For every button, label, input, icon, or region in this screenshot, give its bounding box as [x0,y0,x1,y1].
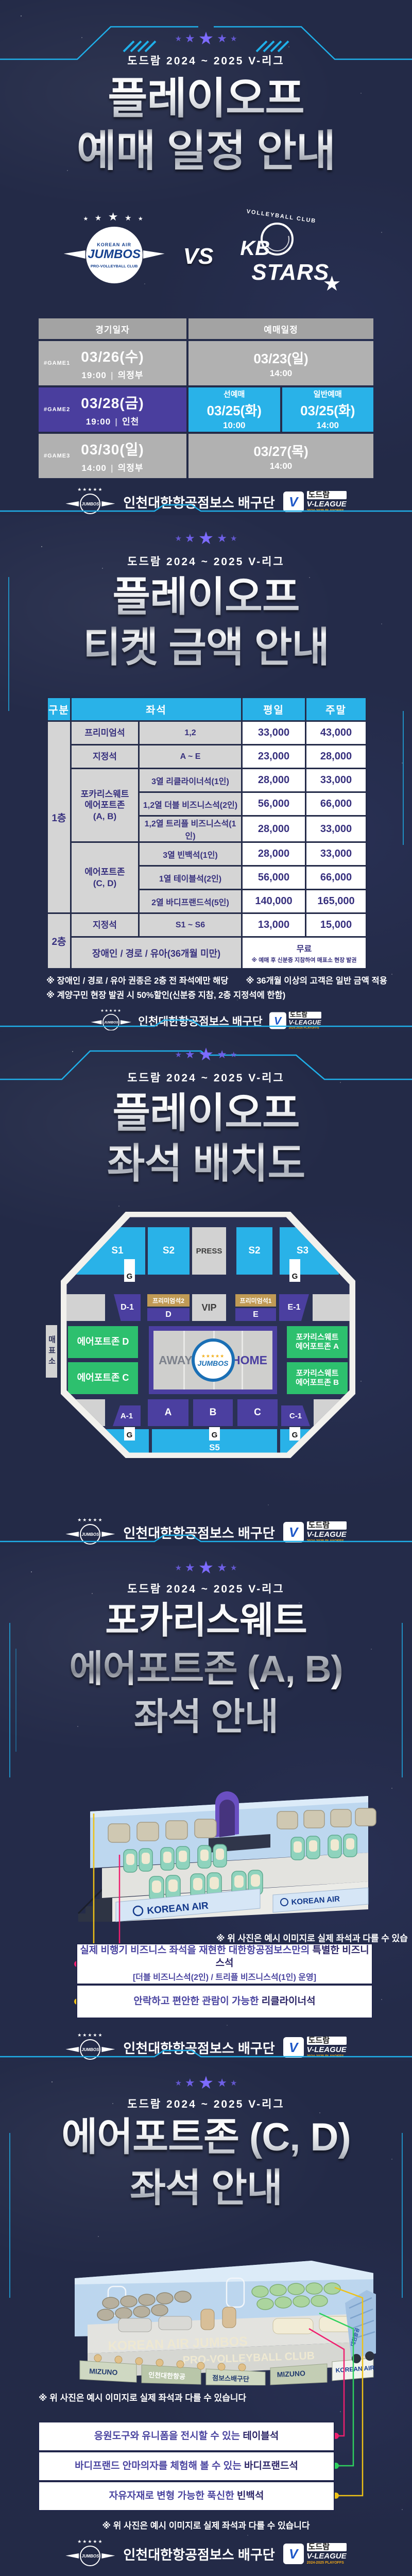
zone-ab-render: KOREAN AIR KOREAN AIR [31,1766,381,1926]
mini-wing-left-icon [65,501,79,506]
vleague-badge: V 도드람 V-LEAGUE 2024-2025 PLAYOFFS [283,491,347,513]
kb-stars-logo: VOLLEYBALL CLUB KB STARS ★ [231,210,349,303]
game2-time-venue: 19:00|인천 [86,414,140,427]
footer: ★★★★★JUMBOS 인천대한항공점보스 배구단 V 도드람V-LEAGUE2… [0,2539,412,2569]
price-table: 구분 좌석 평일 주말 1층 프리미엄석 1,2 33,000 43,000 지… [46,697,367,970]
seat-filler [313,1294,350,1321]
callout-table-seat: 응원도구와 유니폼을 전시할 수 있는 테이블석 [38,2421,335,2451]
seat-section-c1[interactable]: C-1 [281,1405,310,1426]
footer: ★★★★★JUMBOS 인천대한항공점보스 배구단 V 도드람V-LEAGUE2… [37,1008,375,1030]
airport-zone-d[interactable]: 에어포트존 D [68,1326,138,1358]
pricing-notes: ※ 장애인 / 경로 / 유아 권종은 2층 전 좌석에만 해당※ 36개월 이… [46,974,387,1003]
section-ticket-pricing: ★★★★★ 도드람 2024 ~ 2025 V-리그 플레이오프 티켓 금액 안… [0,515,412,1030]
callout-bodyfriend-seat: 바디프랜드 안마의자를 체험해 볼 수 있는 바디프랜드석 [38,2451,335,2481]
seat-section-a[interactable]: A [148,1399,188,1426]
schedule-table-header: 경기일자 예매일정 [39,318,373,339]
render-caption: ※ 위 사진은 예시 이미지로 실제 좌석과 다를 수 있습니다 [39,2391,246,2403]
zone-cd-label: 에어포트존 (C, D) [71,842,139,913]
pocari-airport-zone-a[interactable]: 포카리스웨트에어포트존 A [287,1326,348,1358]
game1-tag: #GAME1 [44,360,70,366]
price-row: 1층 프리미엄석 1,2 33,000 43,000 [47,721,367,745]
star-row: ★★★★★ [0,30,412,47]
floor2-label: 2층 [47,913,71,969]
circuit-decoration [403,711,404,845]
header-zone: 구분 [47,698,71,721]
schedule-row-game2: #GAME2 03/28(금) 19:00|인천 선예매 03/25(화) 10… [39,387,373,432]
home-label: HOME [232,1353,267,1367]
title-line-1: 플레이오프 [0,572,412,622]
game3-tag: #GAME3 [44,453,70,459]
banner-team: 점보스배구단 [212,2374,249,2383]
seat-section-d[interactable]: D [147,1308,190,1321]
section-title: 플레이오프 좌석 배치도 [0,1088,412,1189]
free-price-cell: 무료 ※ 예매 후 신분증 지참하여 매표소 현장 발권 [242,937,367,969]
mini-wing-right-icon [101,501,115,506]
jumbos-logo-top-text: KOREAN AIR [97,242,131,247]
seat-section-b[interactable]: B [193,1399,233,1426]
matchup: ★ ★ ★ ★ ★ KOREAN AIR JUMBOS PRO-VOLLEYBA… [0,210,412,303]
game3-booking-cell: 03/27(목) 14:00 [188,434,373,478]
away-label: AWAY [159,1353,193,1367]
star-icon: ★ [217,33,227,44]
price-free-row: 장애인 / 경로 / 유아(36개월 미만) 무료 ※ 예매 후 신분증 지참하… [47,937,367,969]
vleague-dodram: 도드람 [307,491,347,499]
kb-logo-kb: KB [240,237,270,260]
callout-beanbag-seat: 자유자재로 변형 가능한 푹신한 빈백석 [38,2481,335,2511]
jumbos-wing-left-icon [64,250,85,259]
game3-date: 03/30(일) [81,438,144,459]
jumbos-logo-bottom-text: PRO-VOLLEYBALL CLUB [91,264,138,268]
gate-marker: G [124,1427,135,1440]
game3-cell: #GAME3 03/30(일) 14:00|의정부 [39,434,186,478]
seat-section-premium2[interactable]: 프리미엄석2 [147,1294,190,1307]
header-weekday: 평일 [242,698,306,721]
seat-section-e[interactable]: E [235,1308,276,1321]
league-subtitle: 도드람 2024 ~ 2025 V-리그 [0,2096,412,2111]
bottom-caption: ※ 위 사진은 예시 이미지로 실제 좌석과 다를 수 있습니다 [0,2518,412,2531]
section-zone-ab-guide: ★★★★★ 도드람 2024 ~ 2025 V-리그 포카리스웨트 에어포트존 … [0,1546,412,2061]
speckle-texture [21,15,22,16]
mini-logo-circle: JUMBOS [80,494,100,514]
league-subtitle: 도드람 2024 ~ 2025 V-리그 [0,53,412,68]
title-line-2: 좌석 배치도 [0,1139,412,1189]
gate-marker: G [124,1259,135,1282]
seat-section-s2-right[interactable]: S2 [236,1227,272,1275]
game2-presale-cell: 선예매 03/25(화) 10:00 [188,387,280,432]
title-line-1: 플레이오프 [0,1088,412,1139]
gate-marker: G [209,1427,220,1440]
section-title: 포카리스웨트 에어포트존 (A, B) 좌석 안내 [0,1597,412,1742]
star-icon: ★ [198,30,214,47]
seat-section-vip[interactable]: VIP [192,1294,226,1321]
section-zone-cd-guide: ★★★★★ 도드람 2024 ~ 2025 V-리그 에어포트존 (C, D) … [0,2061,412,2576]
floor1-label: 1층 [47,721,71,913]
kb-logo-stars: STARS [251,260,329,285]
title-line-2: 티켓 금액 안내 [0,622,412,673]
game1-cell: #GAME1 03/26(수) 19:00|의정부 [39,341,186,385]
jumbos-logo: ★ ★ ★ ★ ★ KOREAN AIR JUMBOS PRO-VOLLEYBA… [63,210,166,303]
seat-section-c[interactable]: C [237,1399,278,1426]
section-booking-schedule: ★★★★★ 도드람 2024 ~ 2025 V-리그 플레이오프 예매 일정 안… [0,0,412,515]
column-booking: 예매일정 [188,318,373,339]
pocari-airport-zone-b[interactable]: 포카리스웨트에어포트존 B [287,1362,348,1394]
footer: ★★★★★JUMBOS 인천대한항공점보스 배구단 V 도드람V-LEAGUE2… [0,2032,412,2061]
seat-section-s2-left[interactable]: S2 [148,1227,190,1275]
gate-marker: G [289,1259,300,1282]
star-icon: ★ [175,35,182,43]
game2-booking-cells: 선예매 03/25(화) 10:00 일반예매 03/25(화) 14:00 [188,387,373,432]
footer: ★★★★★ JUMBOS 인천대한항공점보스 배구단 V 도드람 V-LEAGU… [0,487,412,515]
jumbos-logo-circle: KOREAN AIR JUMBOS PRO-VOLLEYBALL CLUB [86,227,143,283]
game1-time-venue: 19:00|의정부 [81,368,143,381]
zone-cd-render: KOREAN AIR JUMBOS PRO-VOLLEYBALL CLUB MI… [31,2231,381,2385]
jumbos-logo-name: JUMBOS [88,247,141,262]
seat-section-press[interactable]: PRESS [192,1227,226,1275]
kb-star-icon: ★ [322,272,341,296]
header-weekend: 주말 [306,698,367,721]
title-line-2: 예매 일정 안내 [0,125,412,177]
footer: ★★★★★JUMBOS 인천대한항공점보스 배구단 V 도드람V-LEAGUE2… [0,1517,412,1546]
game3-time-venue: 14:00|의정부 [81,461,143,473]
schedule-row-game3: #GAME3 03/30(일) 14:00|의정부 03/27(목) 14:00 [39,434,373,478]
banner-mizuno: MIZUNO [277,2369,305,2379]
volleyball-court: AWAY ★★★★★ JUMBOS HOME [149,1326,277,1394]
title-line-2: 에어포트존 (A, B) [0,1646,412,1694]
jumbos-wing-right-icon [143,250,165,259]
game2-tag: #GAME2 [44,406,70,413]
kb-logo-top-text: VOLLEYBALL CLUB [246,209,317,225]
price-row: 2층 지정석 S1 ~ S6 13,000 15,000 [47,913,367,937]
section-title: 에어포트존 (C, D) 좌석 안내 [0,2112,412,2214]
price-row: 에어포트존 (C, D) 3열 빈백석(1인) 28,000 33,000 [47,842,367,866]
jumbos-logo-stars: ★ ★ ★ ★ ★ [63,210,166,224]
star-icon: ★ [185,33,195,44]
title-line-1: 포카리스웨트 [0,1597,412,1646]
column-game-date: 경기일자 [39,318,186,339]
airport-zone-c[interactable]: 에어포트존 C [68,1362,138,1394]
section-seat-map: ★★★★★ 도드람 2024 ~ 2025 V-리그 플레이오프 좌석 배치도 … [0,1030,412,1546]
seat-section-e1[interactable]: E-1 [279,1294,309,1321]
seat-map: S1 S2 PRESS S2 S3 G G D-1 프리미엄석2 D VIP 프… [61,1212,355,1458]
seat-filler [66,1294,105,1321]
star-icon: ★ [230,35,237,43]
game1-date: 03/26(수) [81,346,144,366]
callout-business-seat: 실제 비행기 비즈니스 좌석을 재현한 대한항공점보스만의 특별한 비즈니스석 … [76,1943,373,1985]
section-title: 플레이오프 티켓 금액 안내 [0,572,412,672]
banner-mizuno: MIZUNO [89,2367,118,2377]
price-header-row: 구분 좌석 평일 주말 [47,698,367,721]
zone-ab-label: 포카리스웨트 에어포트존 (A, B) [71,769,139,842]
vleague-v-icon: V [283,492,304,512]
game1-booking-cell: 03/23(일) 14:00 [188,341,373,385]
vleague-league: V-LEAGUE [307,500,347,509]
star-row: ★★★★★ [0,1046,412,1063]
gate-marker: G [289,1427,300,1440]
star-row: ★★★★★ [0,530,412,547]
game2-date: 03/28(금) [81,392,144,413]
court-jumbos-badge: ★★★★★ JUMBOS [192,1338,235,1382]
seat-section-premium1[interactable]: 프리미엄석1 [235,1294,276,1307]
star-row: ★★★★★ [0,2074,412,2092]
game2-general-cell: 일반예매 03/25(화) 14:00 [282,387,374,432]
league-subtitle: 도드람 2024 ~ 2025 V-리그 [0,1070,412,1085]
title-line-1: 플레이오프 [0,72,412,125]
price-row: 포카리스웨트 에어포트존 (A, B) 3열 리클라이너석(1인) 28,000… [47,769,367,792]
star-row: ★★★★★ [0,1559,412,1577]
title-line-1: 에어포트존 (C, D) [0,2112,412,2163]
title-line-2: 좌석 안내 [0,2163,412,2214]
title-line-3: 좌석 안내 [0,1693,412,1742]
league-subtitle: 도드람 2024 ~ 2025 V-리그 [0,553,412,569]
league-subtitle: 도드람 2024 ~ 2025 V-리그 [0,1581,412,1596]
schedule-table: 경기일자 예매일정 #GAME1 03/26(수) 19:00|의정부 03/2… [39,318,373,480]
header-seat: 좌석 [71,698,242,721]
schedule-row-game1: #GAME1 03/26(수) 19:00|의정부 03/23(일) 14:00 [39,341,373,385]
ticket-office-label: 매표소 [46,1325,57,1378]
game2-cell: #GAME2 03/28(금) 19:00|인천 [39,387,186,432]
jumbos-mini-logo: ★★★★★ JUMBOS [65,487,115,515]
vleague-sub: 2024-2025 PLAYOFFS [307,509,347,513]
mini-logo-stars: ★★★★★ [65,487,115,493]
seat-section-a1[interactable]: A-1 [113,1405,141,1426]
playoff-poster: ★★★★★ 도드람 2024 ~ 2025 V-리그 플레이오프 예매 일정 안… [0,0,412,2576]
section-title: 플레이오프 예매 일정 안내 [0,72,412,178]
price-row: 지정석 A ~ E 23,000 28,000 [47,745,367,769]
vs-label: VS [183,244,214,269]
callout-recliner-seat: 안락하고 편안한 관람이 가능한 리클라이너석 [76,1985,373,2019]
footer-team-name: 인천대한항공점보스 배구단 [123,493,274,512]
seat-section-d1[interactable]: D-1 [114,1294,141,1321]
